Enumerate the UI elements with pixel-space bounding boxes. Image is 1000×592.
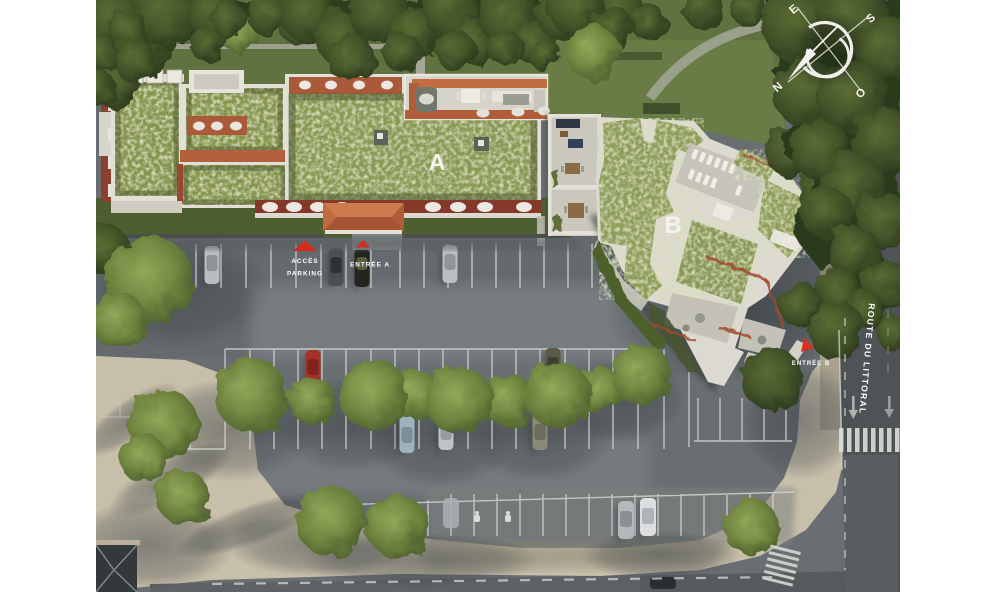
svg-text:ACCÈS: ACCÈS [291,256,318,265]
svg-text:ENTRÉE B: ENTRÉE B [792,359,830,367]
svg-text:B: B [664,212,681,239]
svg-text:A: A [429,149,446,175]
svg-text:ENTRÉE A: ENTRÉE A [350,260,390,269]
svg-text:PARKING: PARKING [287,271,323,278]
